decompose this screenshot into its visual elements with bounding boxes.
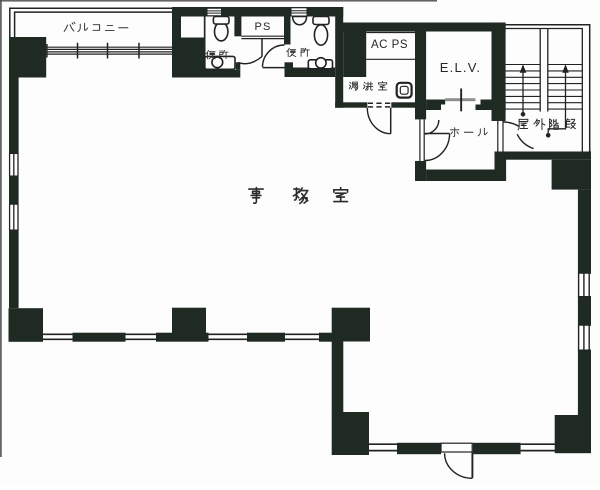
- svg-text:AC PS: AC PS: [371, 39, 408, 51]
- svg-text:PS: PS: [254, 21, 271, 33]
- svg-text:E.L.V.: E.L.V.: [440, 60, 481, 75]
